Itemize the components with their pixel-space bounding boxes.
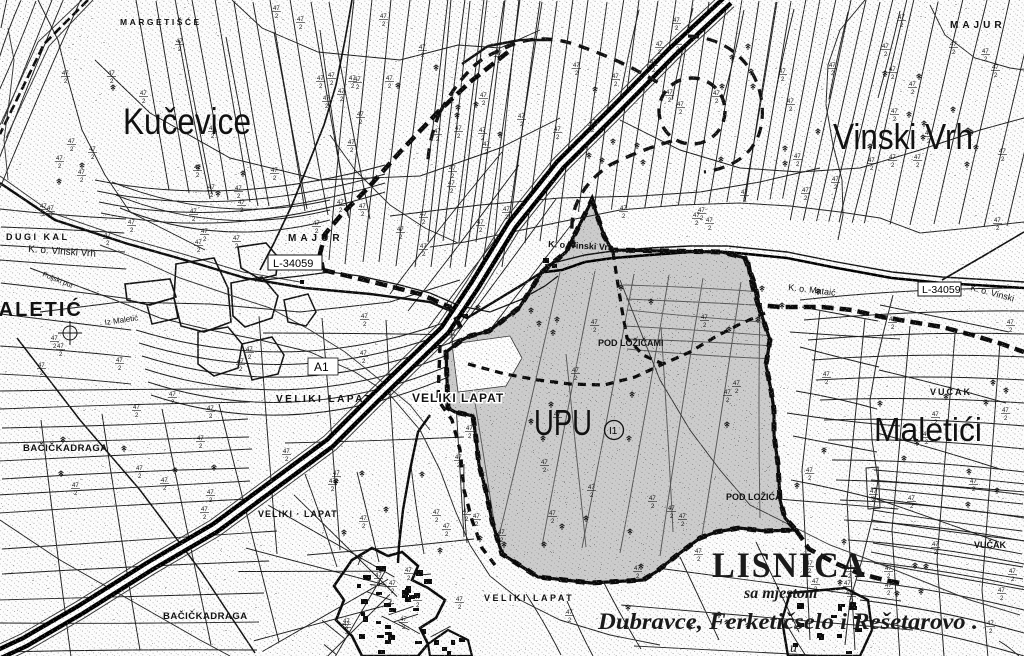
svg-text:u: u [790,641,797,656]
svg-text:L-34059: L-34059 [922,284,961,296]
svg-text:MAJUR: MAJUR [950,20,1006,31]
svg-text:I1: I1 [609,426,618,437]
svg-text:VUČAK: VUČAK [930,386,972,397]
svg-text:Vinski Vrh: Vinski Vrh [833,116,973,157]
svg-text:Maletići: Maletići [874,411,982,448]
svg-text:VELIKI LAPAT: VELIKI LAPAT [484,593,574,603]
svg-text:VELIKI · LAPAT: VELIKI · LAPAT [258,509,338,519]
svg-text:POD LOŽIČAMI: POD LOŽIČAMI [598,337,664,348]
svg-text:A1: A1 [314,360,329,374]
svg-text:VELIKI LAPAT: VELIKI LAPAT [276,394,373,405]
svg-text:MARGETIŠĆE: MARGETIŠĆE [120,16,202,27]
svg-text:Dubravce, Ferketičselo i Rešet: Dubravce, Ferketičselo i Rešetarovo . [597,609,978,634]
svg-text:VUČAK: VUČAK [974,539,1007,550]
svg-text:BAČIČKADRAGA: BAČIČKADRAGA [163,610,248,622]
svg-text:MALETIĆ: MALETIĆ [0,297,83,321]
svg-text:LISNICA: LISNICA [712,545,867,585]
svg-text:sa mjestom: sa mjestom [743,585,817,602]
svg-text:BAČIČKADRAGA: BAČIČKADRAGA [23,442,108,454]
svg-text:VELIKI LAPAT: VELIKI LAPAT [412,391,504,405]
svg-text:MAJUR: MAJUR [288,233,344,244]
svg-text:Kučevice: Kučevice [123,101,251,142]
svg-text:L-34059: L-34059 [273,258,313,270]
svg-text:POD LOŽIĆA: POD LOŽIĆA [726,491,782,502]
svg-text:DUGI KAL: DUGI KAL [6,232,70,242]
svg-text:UPU: UPU [534,402,592,443]
